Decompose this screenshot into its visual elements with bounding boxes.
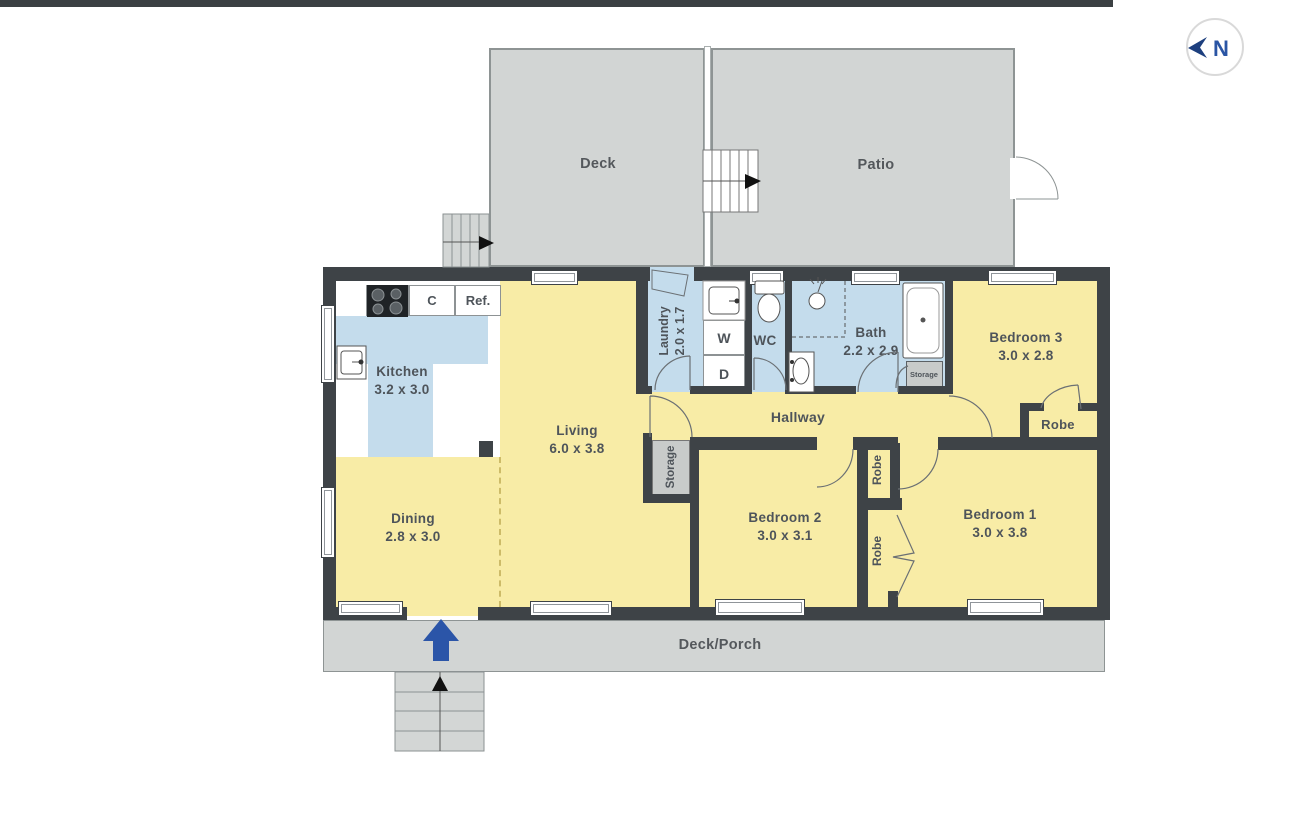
deck-label: Deck [538, 155, 658, 174]
top-crop-bar [0, 0, 1113, 7]
patio-label: Patio [816, 156, 936, 175]
deck-patio-divider-wall [704, 46, 711, 267]
window-wc-top [749, 270, 784, 285]
stove-cell [366, 285, 409, 316]
window-dining-bottom [338, 601, 403, 616]
wall-kitchen-stub [479, 441, 493, 457]
wall-robe-upper-right [890, 443, 900, 500]
wall-hall-bottom-1 [690, 437, 817, 450]
robe-upper-label: Robe [870, 450, 884, 490]
wall-hall-top-2 [690, 386, 752, 394]
window-bed2-bottom [715, 599, 805, 616]
front-door-opening [407, 607, 478, 616]
floorplan: Deck Patio C Ref. W D [0, 0, 1290, 813]
wall-storage-left [643, 433, 652, 503]
bedroom1-label: Bedroom 13.0 x 3.8 [940, 506, 1060, 541]
wall-laundry-left [636, 281, 648, 386]
window-living-bottom [530, 601, 612, 616]
wall-hall-top-4 [898, 386, 953, 394]
wc-label: WC [735, 332, 795, 350]
porch-stairs [395, 672, 484, 751]
hallway-label: Hallway [738, 408, 858, 426]
patio-door-opening [1010, 158, 1019, 199]
window-kitchen-left [321, 305, 335, 383]
compass: N [1187, 19, 1243, 75]
porch-label: Deck/Porch [650, 636, 790, 655]
dining-label: Dining2.8 x 3.0 [353, 510, 473, 545]
window-dining-left [321, 487, 335, 558]
window-bed1-bottom [967, 599, 1044, 616]
wall-bed2-left [690, 437, 699, 620]
compass-needle-icon [1188, 37, 1207, 58]
kitchen-blue-floor [336, 316, 488, 364]
bedroom2-label: Bedroom 23.0 x 3.1 [725, 509, 845, 544]
window-bath-top [851, 270, 900, 285]
cupboard-cell: C [409, 285, 455, 316]
compass-n-label: N [1213, 36, 1229, 61]
fridge-cell: Ref. [455, 285, 501, 316]
storage-bath-label: Storage [894, 370, 954, 380]
robe-lower-label: Robe [870, 531, 884, 571]
wall-hall-top-3 [785, 386, 856, 394]
bedroom3-label: Bedroom 33.0 x 2.8 [966, 329, 1086, 364]
kitchen-label: Kitchen3.2 x 3.0 [342, 363, 462, 398]
laundry-label: Laundry2.0 x 1.7 [657, 291, 689, 371]
living-dining-divider [499, 457, 501, 607]
bath-label: Bath2.2 x 2.9 [811, 324, 931, 359]
wall-hall-bottom-3 [938, 437, 1097, 450]
wall-bed2-robe [857, 443, 868, 607]
wall-robe-lower-stub [888, 591, 898, 607]
window-bed3-top [988, 270, 1057, 285]
wall-robe3-top-2 [1078, 403, 1097, 411]
wall-hall-top-1 [636, 386, 652, 394]
living-label: Living6.0 x 3.8 [517, 422, 637, 457]
window-living-top [531, 270, 578, 285]
wall-right [1097, 267, 1110, 620]
laundry-door-gap [650, 267, 694, 281]
patio-door [1016, 157, 1058, 199]
wall-robe3-top-1 [1020, 403, 1044, 411]
robe-bed3-label: Robe [998, 417, 1118, 434]
storage-hall-label: Storage [664, 432, 678, 502]
wall-top-left [323, 267, 650, 281]
deck-left-stairs [443, 214, 494, 267]
wall-robe-mid [857, 498, 902, 510]
